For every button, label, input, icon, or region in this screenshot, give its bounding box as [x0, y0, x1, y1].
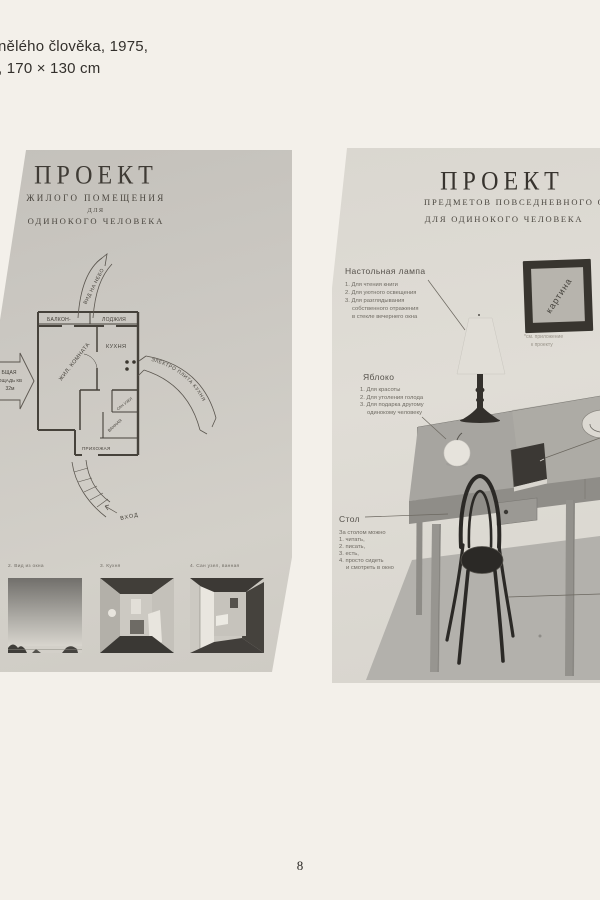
- table-note-line: За столом можно: [339, 530, 394, 537]
- book: [511, 443, 547, 492]
- stove-arrow: [138, 356, 216, 434]
- apple-note-line: 2. Для утоления голода: [360, 395, 424, 403]
- lamp-annotation: Настольная лампа 1. Для чтения книги 2. …: [345, 266, 426, 321]
- page-number: 8: [0, 858, 600, 874]
- plan-label-balcony: БАЛКОН-: [47, 317, 71, 323]
- entrance-arrow: [72, 460, 117, 517]
- picture-footnote: *см. приложение к проекту: [524, 333, 563, 349]
- table-note-line: 3. есть,: [339, 551, 394, 558]
- book-caption: nělého člověka, 1975, , 170 × 130 cm: [0, 36, 148, 80]
- photo-window-view: [8, 578, 82, 653]
- area-label-1: БЩАЯ: [2, 370, 17, 376]
- plan-label-hallway: ПРИХОЖАЯ: [82, 446, 111, 451]
- photo-bathroom: [190, 578, 264, 653]
- plan-label-san-uzel: САН УЗЕЛ: [116, 396, 134, 411]
- lamp-note-line: 1. Для чтения книги: [345, 281, 426, 289]
- caption-line-2: , 170 × 130 cm: [0, 58, 148, 80]
- lamp-note-line: 3. Для разглядывания: [345, 297, 426, 305]
- plan-label-loggia: ЛОДЖИЯ: [102, 317, 126, 323]
- apple-note-line: одинокому человеку: [360, 410, 424, 418]
- apple-note-line: 3. Для подарка другому: [360, 402, 424, 410]
- photo-kitchen: [100, 578, 174, 653]
- plan-label-living-room: ЖИЛ. КОМНАТА: [58, 342, 91, 382]
- apple-annotation-title: Яблоко: [360, 372, 424, 382]
- sky-view-arrow-label: ВИД НА НЕБО: [83, 267, 106, 305]
- photo-caption-bathroom: 4. Сан узел, ванная: [190, 564, 239, 569]
- table-note-line: 1. читать,: [339, 537, 394, 544]
- stove-arrow-label: ЭЛЕКТРО ПЛИТА КУХНЯ: [150, 357, 206, 403]
- lamp-note-line: собственного отражения: [345, 305, 426, 313]
- framed-picture: картина: [523, 259, 593, 333]
- artwork-left-living-space-project: ПРОЕКТ ЖИЛОГО ПОМЕЩЕНИЯ ДЛЯ ОДИНОКОГО ЧЕ…: [0, 150, 292, 672]
- table-annotation-title: Стол: [339, 514, 394, 524]
- table-note-line: и смотреть в окно: [339, 565, 394, 572]
- caption-line-1: nělého člověka, 1975,: [0, 36, 148, 58]
- table-lamp: [457, 314, 505, 423]
- area-label-3: 32м: [6, 386, 16, 392]
- table-note-line: 4. просто сидеть: [339, 558, 394, 565]
- area-label-2: ОЩАДЬ КВ: [0, 378, 22, 383]
- photo-caption-window-view: 2. Вид из окна: [8, 564, 44, 569]
- lamp-note-line: в стекле вечернего окна: [345, 313, 426, 321]
- stove-burners: [125, 360, 136, 371]
- floor-plan-walls: [38, 312, 138, 455]
- lamp-note-line: 2. Для уютного освещения: [345, 289, 426, 297]
- plan-label-kitchen: КУХНЯ: [106, 344, 126, 350]
- picture-footnote-line-2: к проекту: [524, 341, 563, 349]
- drawer-knob: [504, 510, 508, 514]
- lamp-annotation-title: Настольная лампа: [345, 266, 426, 276]
- table-drawer: [497, 498, 537, 525]
- entrance-arrow-label: ВХОД: [120, 512, 140, 522]
- apple-annotation: Яблоко 1. Для красоты 2. Для утоления го…: [360, 372, 424, 417]
- photo-caption-kitchen: 3. Кухня: [100, 564, 121, 569]
- table-note-line: 2. писать,: [339, 544, 394, 551]
- picture-footnote-line-1: *см. приложение: [524, 333, 563, 341]
- table-annotation: Стол За столом можно 1. читать, 2. писат…: [339, 514, 394, 572]
- plan-label-bath: ВАННАЯ: [107, 418, 123, 433]
- artwork-right-everyday-objects-project: ПРОЕКТ ПРЕДМЕТОВ ПОВСЕДНЕВНОГО ОБИХОДА Д…: [332, 148, 600, 683]
- svg-text:ЭЛЕКТРО ПЛИТА КУХНЯ: ЭЛЕКТРО ПЛИТА КУХНЯ: [150, 357, 206, 403]
- apple-note-line: 1. Для красоты: [360, 387, 424, 395]
